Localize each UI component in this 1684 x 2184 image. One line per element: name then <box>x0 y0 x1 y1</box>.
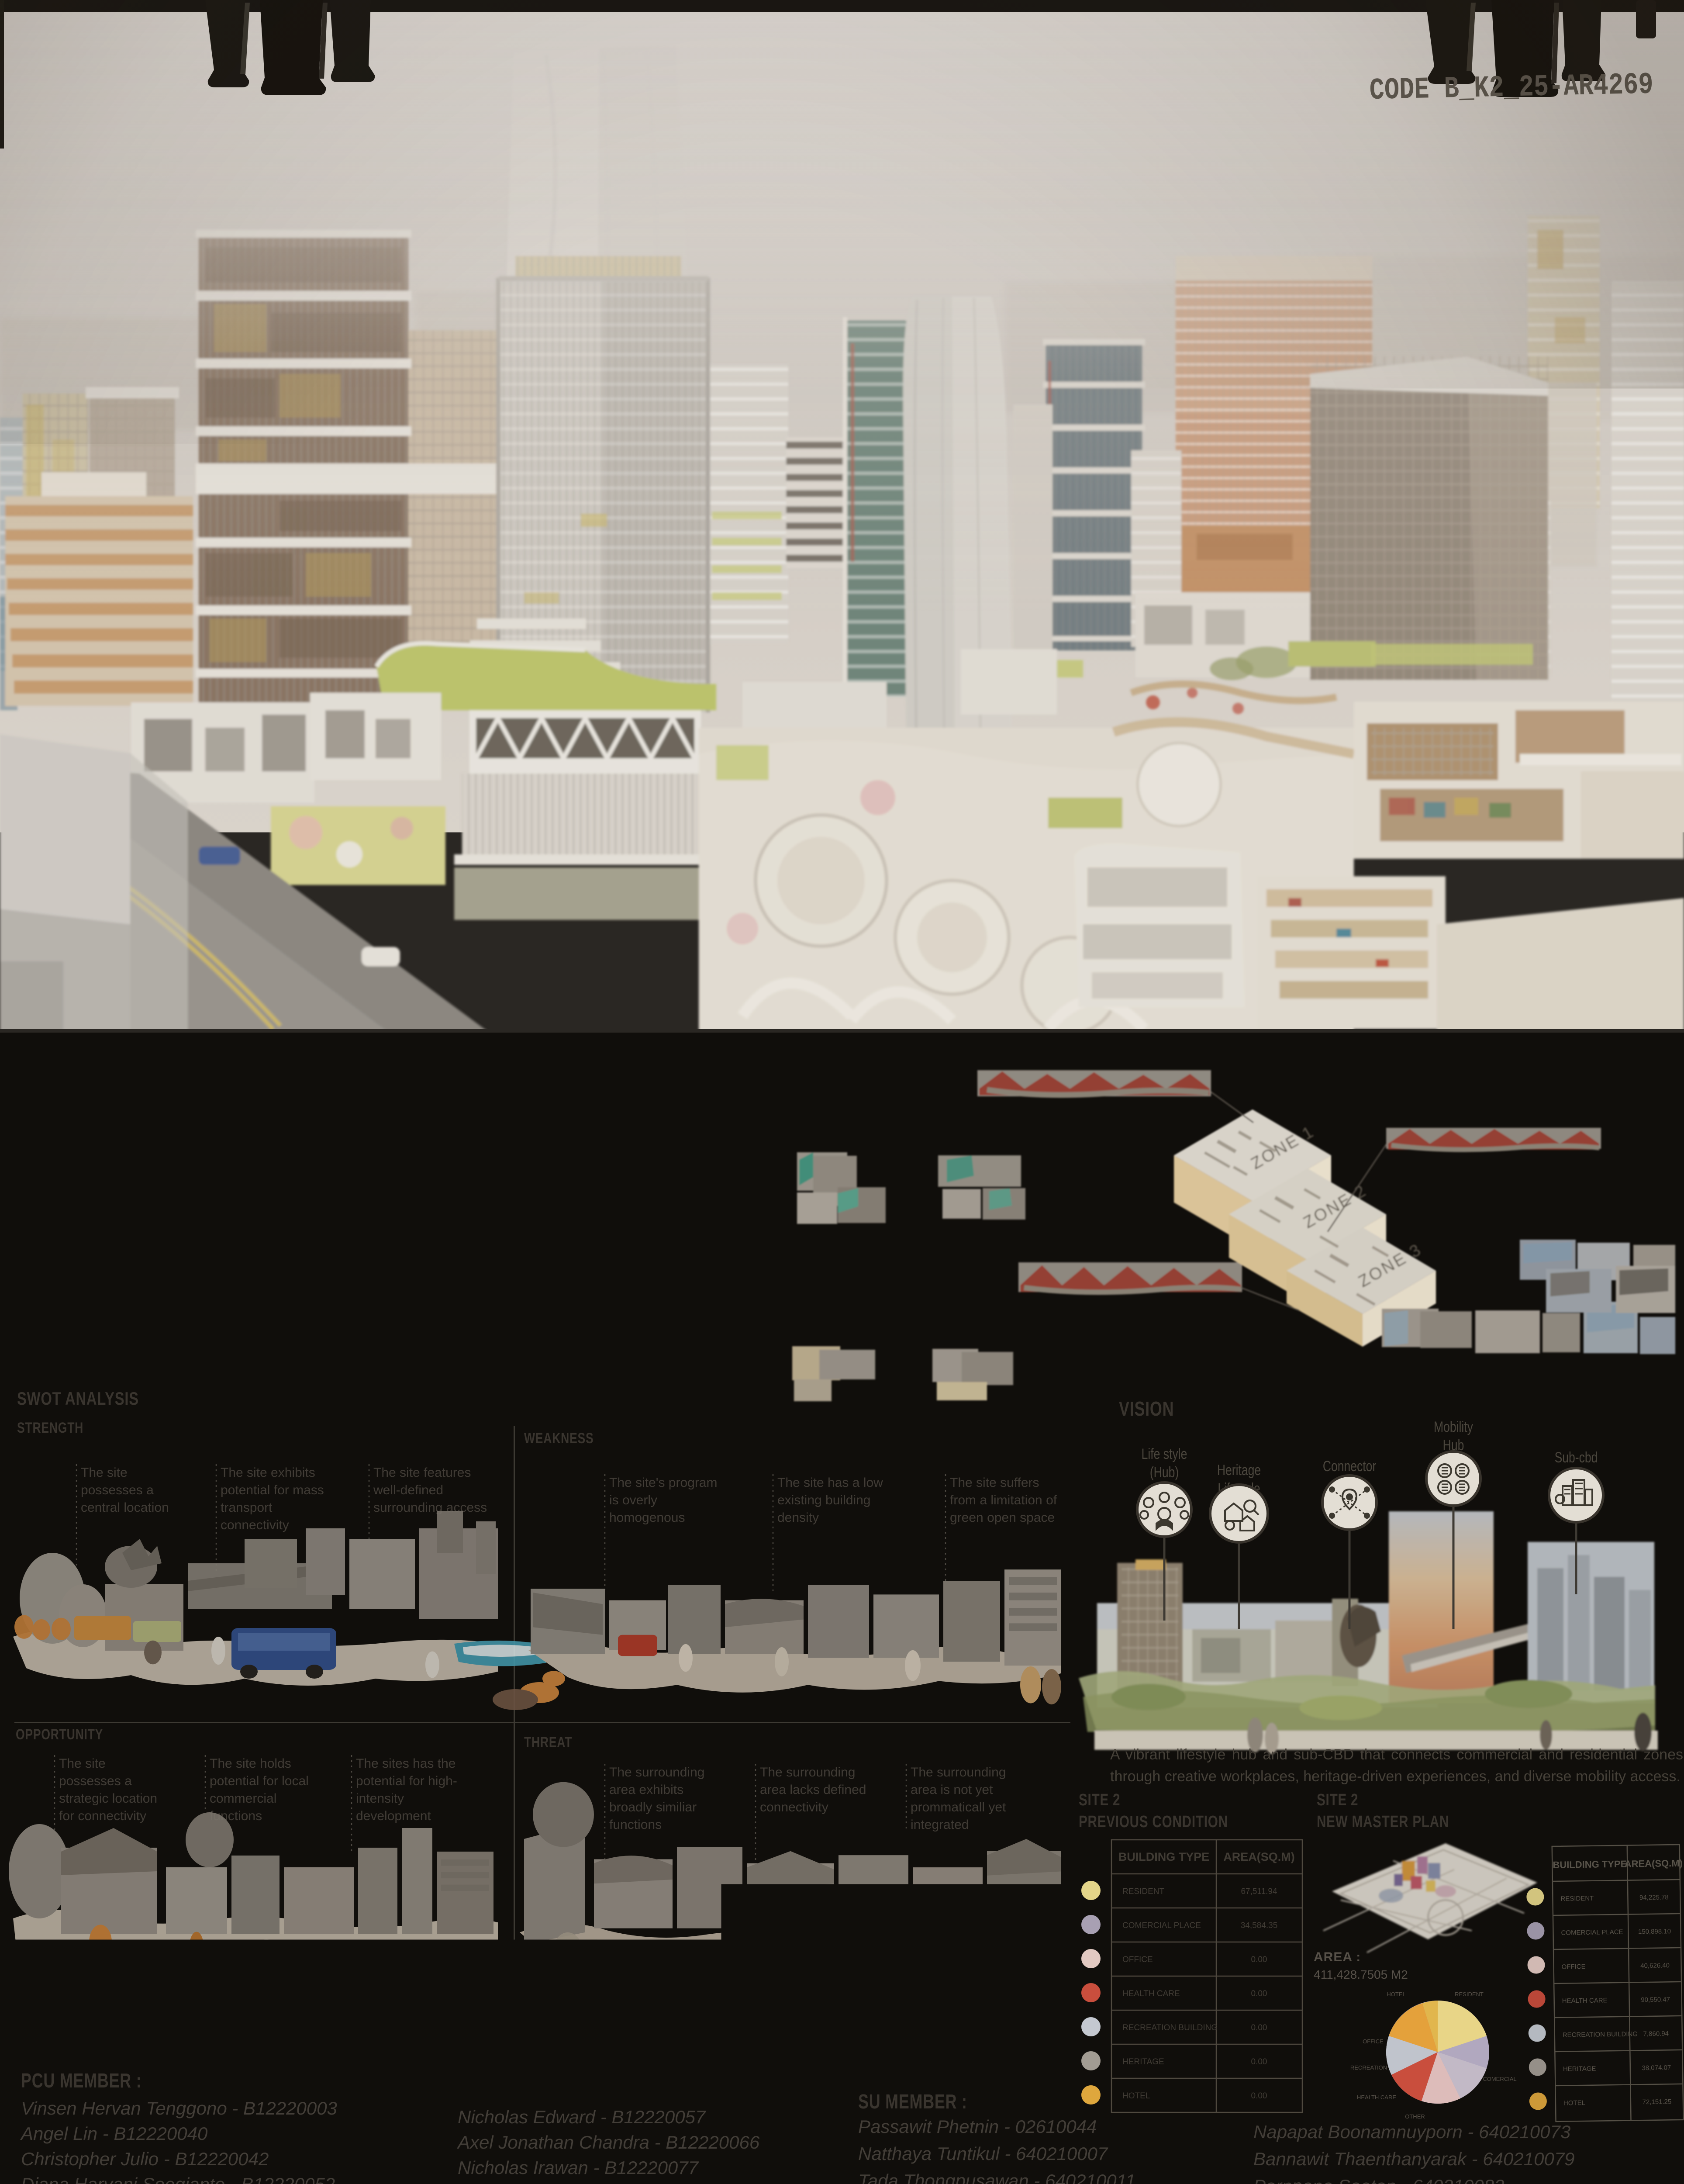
svg-text:AREA :: AREA : <box>1314 1950 1361 1964</box>
svg-text:34,584.35: 34,584.35 <box>1241 1921 1278 1930</box>
svg-text:OFFICE: OFFICE <box>1122 1955 1153 1964</box>
svg-text:OFFICE: OFFICE <box>1561 1963 1585 1971</box>
svg-text:AREA(SQ.M): AREA(SQ.M) <box>1223 1850 1295 1863</box>
svg-text:HEALTH CARE: HEALTH CARE <box>1122 1989 1180 1998</box>
svg-text:RESIDENT: RESIDENT <box>1122 1887 1164 1896</box>
svg-text:OFFICE: OFFICE <box>1363 2038 1384 2045</box>
svg-text:COMERCIAL PLACE: COMERCIAL PLACE <box>1122 1921 1201 1930</box>
svg-text:HEALTH CARE: HEALTH CARE <box>1562 1997 1608 2004</box>
svg-text:411,428.7505 M2: 411,428.7505 M2 <box>1314 1968 1408 1981</box>
svg-text:0.00: 0.00 <box>1251 1989 1267 1998</box>
svg-text:BUILDING TYPE: BUILDING TYPE <box>1118 1850 1210 1863</box>
svg-text:RESIDENT: RESIDENT <box>1455 1991 1484 1997</box>
svg-text:RESIDENT: RESIDENT <box>1560 1895 1594 1903</box>
svg-text:RECREATION BUILDING: RECREATION BUILDING <box>1563 2030 1638 2039</box>
svg-text:0.00: 0.00 <box>1251 1955 1267 1964</box>
svg-text:BUILDING TYPE: BUILDING TYPE <box>1553 1859 1627 1870</box>
svg-text:0.00: 0.00 <box>1251 2023 1267 2032</box>
svg-text:RECREATION BUILDING: RECREATION BUILDING <box>1122 2023 1218 2032</box>
svg-text:HOTEL: HOTEL <box>1387 1991 1405 1997</box>
svg-text:COMERCIAL PLACE: COMERCIAL PLACE <box>1561 1928 1623 1937</box>
svg-text:67,511.94: 67,511.94 <box>1241 1887 1277 1896</box>
